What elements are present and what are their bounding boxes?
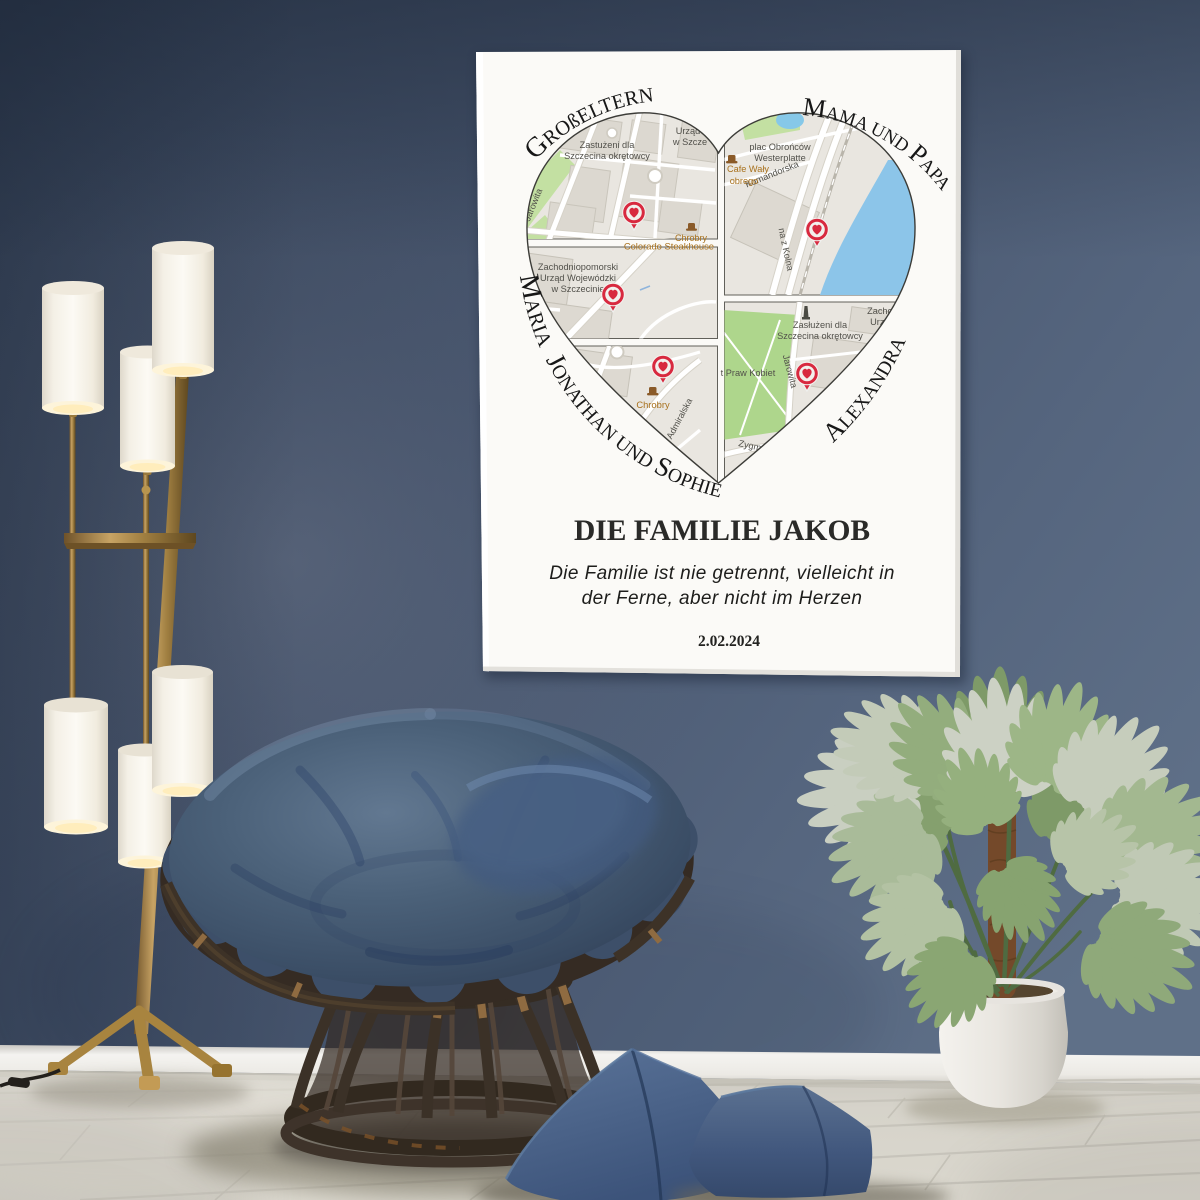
svg-text:Colorado Steakhouse: Colorado Steakhouse bbox=[624, 241, 714, 252]
svg-text:Zasłużeni dla: Zasłużeni dla bbox=[793, 320, 848, 330]
svg-text:der Ferne, aber nicht im Herze: der Ferne, aber nicht im Herzen bbox=[582, 588, 863, 609]
svg-text:Cafe Wały: Cafe Wały bbox=[727, 164, 769, 174]
svg-text:Zastużeni dla: Zastużeni dla bbox=[580, 140, 636, 150]
svg-text:Die Familie ist nie getrennt,: Die Familie ist nie getrennt, vielleicht… bbox=[549, 563, 895, 584]
svg-text:2.02.2024: 2.02.2024 bbox=[698, 633, 760, 650]
svg-text:obrego: obrego bbox=[730, 176, 759, 186]
svg-text:Szczecina okrętowcy: Szczecina okrętowcy bbox=[564, 151, 650, 161]
svg-text:DIE FAMILIE JAKOB: DIE FAMILIE JAKOB bbox=[574, 515, 870, 547]
svg-text:w Szcze: w Szcze bbox=[672, 137, 707, 147]
svg-text:Westerplatte: Westerplatte bbox=[754, 153, 805, 163]
svg-text:Urząd Wojewódzki: Urząd Wojewódzki bbox=[540, 273, 616, 283]
svg-text:t Praw Kobiet: t Praw Kobiet bbox=[721, 368, 776, 378]
svg-text:Szczecina okrętowcy: Szczecina okrętowcy bbox=[777, 331, 863, 341]
svg-text:plac Obrońców: plac Obrońców bbox=[749, 142, 811, 152]
svg-text:Zachodniopomorski: Zachodniopomorski bbox=[538, 262, 618, 272]
svg-text:w Szczecinie: w Szczecinie bbox=[550, 284, 604, 294]
svg-text:Chrobry: Chrobry bbox=[636, 399, 670, 410]
